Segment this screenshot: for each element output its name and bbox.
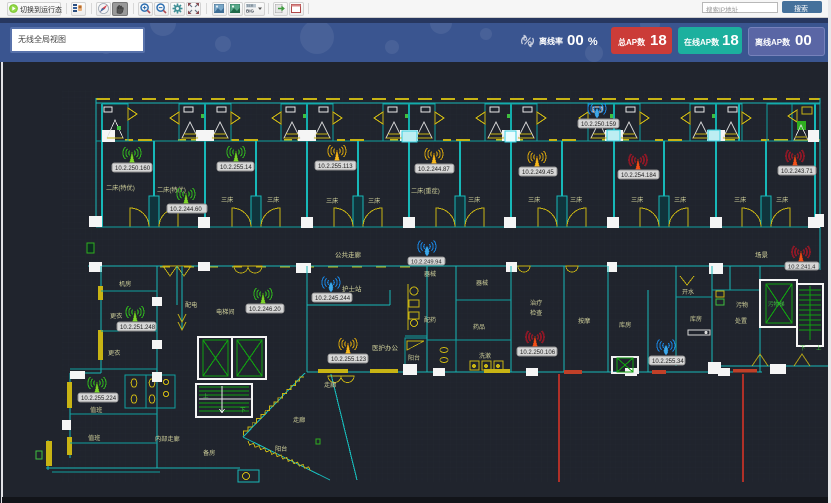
- svg-text:按摩: 按摩: [578, 317, 590, 325]
- svg-text:阳台: 阳台: [275, 445, 287, 453]
- svg-text:10.2.244.60: 10.2.244.60: [170, 207, 202, 213]
- svg-text:三床: 三床: [674, 196, 686, 204]
- svg-text:库房: 库房: [619, 321, 631, 329]
- svg-text:内部走廊: 内部走廊: [155, 435, 180, 443]
- svg-text:三床: 三床: [267, 196, 279, 204]
- svg-text:二床(特优): 二床(特优): [106, 184, 135, 192]
- svg-text:场景: 场景: [755, 250, 769, 259]
- svg-text:三床: 三床: [776, 196, 788, 204]
- svg-text:医护办公: 医护办公: [372, 343, 399, 352]
- svg-text:10.2.245.244: 10.2.245.244: [315, 296, 351, 302]
- svg-text:器械: 器械: [424, 270, 436, 278]
- svg-text:三床: 三床: [570, 196, 582, 204]
- svg-text:10.2.250.160: 10.2.250.160: [115, 166, 151, 172]
- svg-text:10.2.255.123: 10.2.255.123: [331, 357, 367, 363]
- svg-text:药品: 药品: [473, 323, 485, 331]
- svg-text:10.2.249.45: 10.2.249.45: [522, 170, 554, 176]
- svg-text:更衣: 更衣: [108, 349, 120, 357]
- svg-text:三床: 三床: [631, 196, 643, 204]
- svg-text:10.2.255.34: 10.2.255.34: [652, 359, 684, 365]
- svg-text:配电: 配电: [185, 301, 197, 309]
- svg-text:10.2.249.94: 10.2.249.94: [411, 260, 442, 266]
- svg-text:电梯间: 电梯间: [216, 308, 235, 316]
- svg-text:处置: 处置: [735, 317, 747, 325]
- svg-text:10.2.251.248: 10.2.251.248: [120, 325, 156, 331]
- svg-text:库房: 库房: [690, 315, 702, 323]
- svg-text:配药: 配药: [424, 316, 436, 324]
- svg-text:10.2.243.71: 10.2.243.71: [781, 169, 813, 175]
- svg-text:污物梯: 污物梯: [768, 300, 785, 308]
- svg-text:走廊: 走廊: [293, 416, 305, 424]
- svg-text:二床(重症): 二床(重症): [411, 187, 440, 195]
- svg-text:器械: 器械: [476, 279, 488, 287]
- svg-text:公共走廊: 公共走廊: [335, 250, 362, 259]
- svg-text:上: 上: [203, 392, 209, 400]
- svg-text:10.2.254.184: 10.2.254.184: [621, 173, 657, 179]
- svg-text:10.2.250.159: 10.2.250.159: [581, 122, 617, 128]
- svg-text:治疗: 治疗: [530, 299, 542, 307]
- svg-text:护士站: 护士站: [342, 284, 362, 293]
- svg-text:更衣: 更衣: [110, 312, 122, 320]
- svg-text:10.2.255.113: 10.2.255.113: [318, 164, 353, 170]
- svg-text:10.2.244.87: 10.2.244.87: [418, 167, 450, 173]
- svg-text:检查: 检查: [530, 309, 542, 317]
- svg-text:下: 下: [800, 345, 806, 352]
- svg-text:阳台: 阳台: [408, 354, 420, 362]
- svg-text:BIG: BIG: [246, 9, 255, 14]
- svg-text:三床: 三床: [734, 196, 746, 204]
- svg-text:10.2.241.4: 10.2.241.4: [788, 265, 816, 271]
- svg-text:值班: 值班: [90, 406, 102, 414]
- svg-text:三床: 三床: [368, 197, 380, 205]
- svg-text:开水: 开水: [682, 288, 694, 296]
- svg-text:10.2.255.14: 10.2.255.14: [220, 165, 252, 171]
- svg-text:洗漱: 洗漱: [479, 352, 491, 360]
- svg-text:三床: 三床: [221, 196, 233, 204]
- svg-text:10.2.250.106: 10.2.250.106: [520, 350, 556, 356]
- svg-text:10.2.246.20: 10.2.246.20: [249, 307, 281, 313]
- svg-text:走廊: 走廊: [324, 381, 336, 389]
- svg-text:TER: TER: [246, 4, 253, 8]
- svg-text:备房: 备房: [203, 449, 215, 457]
- svg-text:污物: 污物: [736, 301, 748, 309]
- svg-text:三床: 三床: [468, 196, 480, 204]
- svg-text:三床: 三床: [528, 196, 540, 204]
- svg-text:下: 下: [240, 407, 246, 414]
- svg-text:上: 上: [816, 344, 822, 352]
- svg-text:10.2.255.224: 10.2.255.224: [81, 396, 117, 402]
- svg-text:三床: 三床: [326, 197, 338, 205]
- svg-text:机房: 机房: [119, 280, 131, 288]
- svg-text:值班: 值班: [88, 434, 100, 442]
